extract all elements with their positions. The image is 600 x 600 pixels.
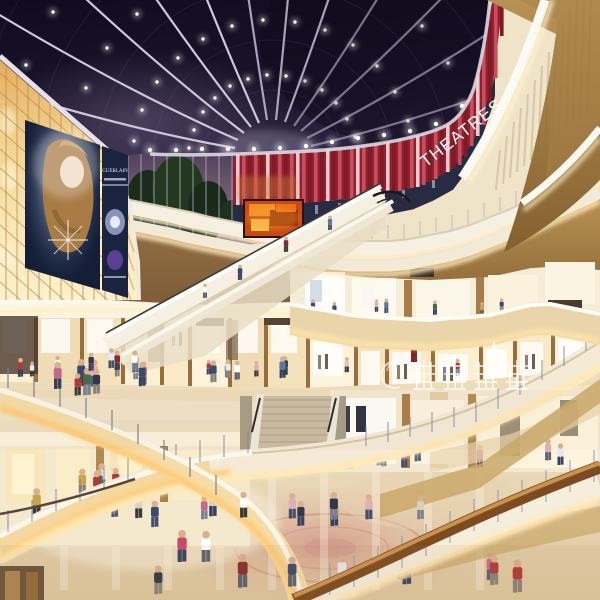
svg-text:GUERLAIN: GUERLAIN [102, 169, 128, 174]
